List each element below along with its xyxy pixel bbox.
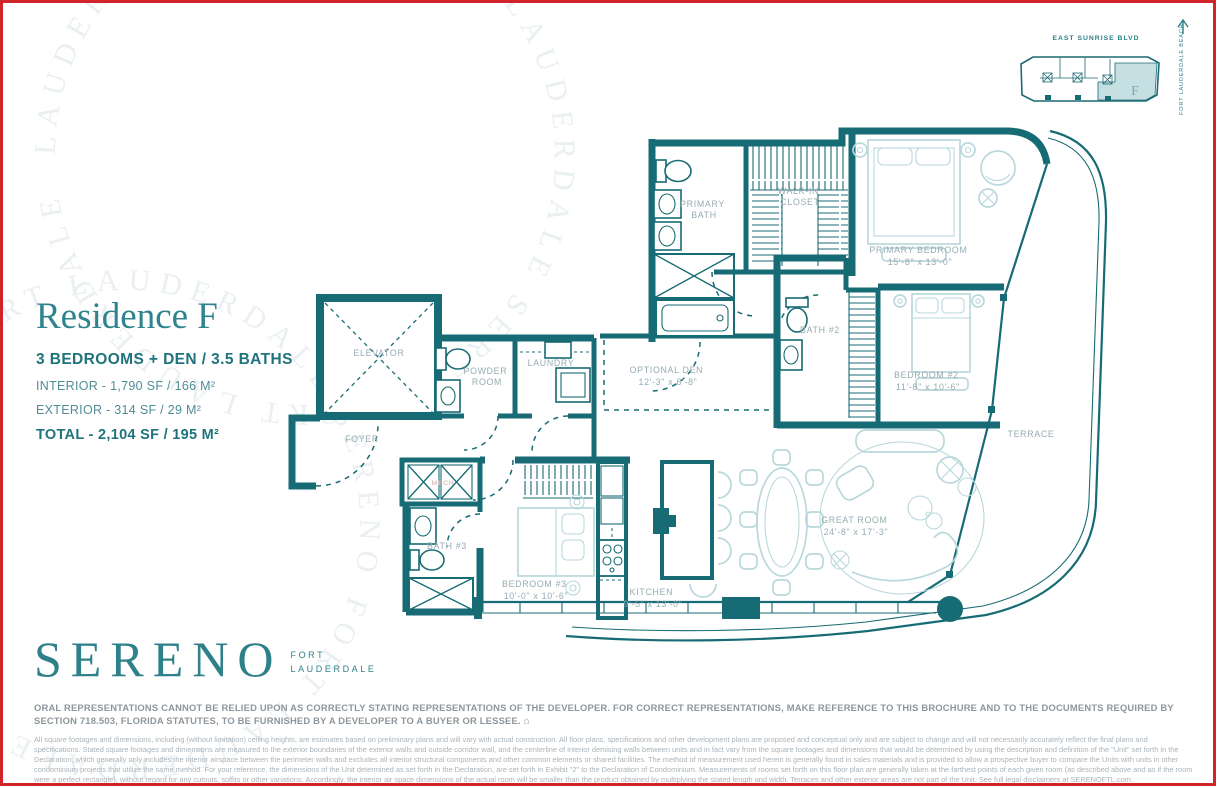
structural-column xyxy=(937,596,963,622)
key-plan-beach-label: FORT LAUDERDALE BEACH xyxy=(1179,23,1185,115)
room-label-primary-bedroom: PRIMARY BEDROOM 15'-8" x 13'-0" xyxy=(869,245,970,267)
room-label-bath3: BATH #3 xyxy=(427,541,467,551)
room-label-foyer: FOYER xyxy=(345,434,379,444)
exterior-area: EXTERIOR - 314 SF / 29 M² xyxy=(36,403,293,417)
room-label-terrace: TERRACE xyxy=(1008,429,1055,439)
room-label-laundry: LAUNDRY xyxy=(528,358,575,368)
room-label-walk-in-closet: WALK-IN CLOSET xyxy=(778,186,822,207)
room-label-bath2: BATH #2 xyxy=(800,325,840,335)
optional-den-boundary xyxy=(604,340,775,410)
logo-brand-text: SERENO xyxy=(34,636,282,682)
page-title: Residence F xyxy=(36,298,293,335)
room-label-mech: MECH xyxy=(432,480,455,487)
title-block: Residence F 3 BEDROOMS + DEN / 3.5 BATHS… xyxy=(36,298,293,443)
key-plan: EAST SUNRISE BLVD F FORT LAUDERDALE BEAC… xyxy=(1021,20,1188,115)
room-label-great-room: GREAT ROOM 24'-8" x 17'-3" xyxy=(821,515,890,537)
room-label-optional-den: OPTIONAL DEN 12'-3" x 6'-8" xyxy=(630,365,707,387)
key-plan-unit-letter: F xyxy=(1131,84,1139,99)
logo-city-text: FORT LAUDERDALE xyxy=(290,649,376,682)
page: LAUDERDALE SERENO FORT LAUDERDALE SERENO… xyxy=(0,0,1219,788)
room-label-kitchen: KITCHEN 9'-5" x 13'-0" xyxy=(623,587,682,609)
legal-block: ORAL REPRESENTATIONS CANNOT BE RELIED UP… xyxy=(34,702,1196,785)
legal-fine-print: All square footages and dimensions, incl… xyxy=(34,735,1196,785)
equal-housing-icon: ⌂ xyxy=(524,716,530,727)
key-plan-street-label: EAST SUNRISE BLVD xyxy=(1052,35,1139,42)
room-label-powder-room: POWDER ROOM xyxy=(464,366,511,387)
room-label-primary-bath: PRIMARY BATH xyxy=(680,199,728,220)
room-label-bedroom2: BEDROOM #2 11'-8" x 10'-6" xyxy=(894,370,962,392)
sereno-logo: SERENO FORT LAUDERDALE xyxy=(34,636,377,682)
interior-area: INTERIOR - 1,790 SF / 166 M² xyxy=(36,379,293,393)
total-area: TOTAL - 2,104 SF / 195 M² xyxy=(36,427,293,443)
room-label-elevator: ELEVATOR xyxy=(353,348,404,358)
room-label-bedroom3: BEDROOM #3 10'-0" x 10'-6" xyxy=(502,579,570,601)
legal-bold-disclaimer: ORAL REPRESENTATIONS CANNOT BE RELIED UP… xyxy=(34,702,1196,728)
residence-subtitle: 3 BEDROOMS + DEN / 3.5 BATHS xyxy=(36,351,293,369)
